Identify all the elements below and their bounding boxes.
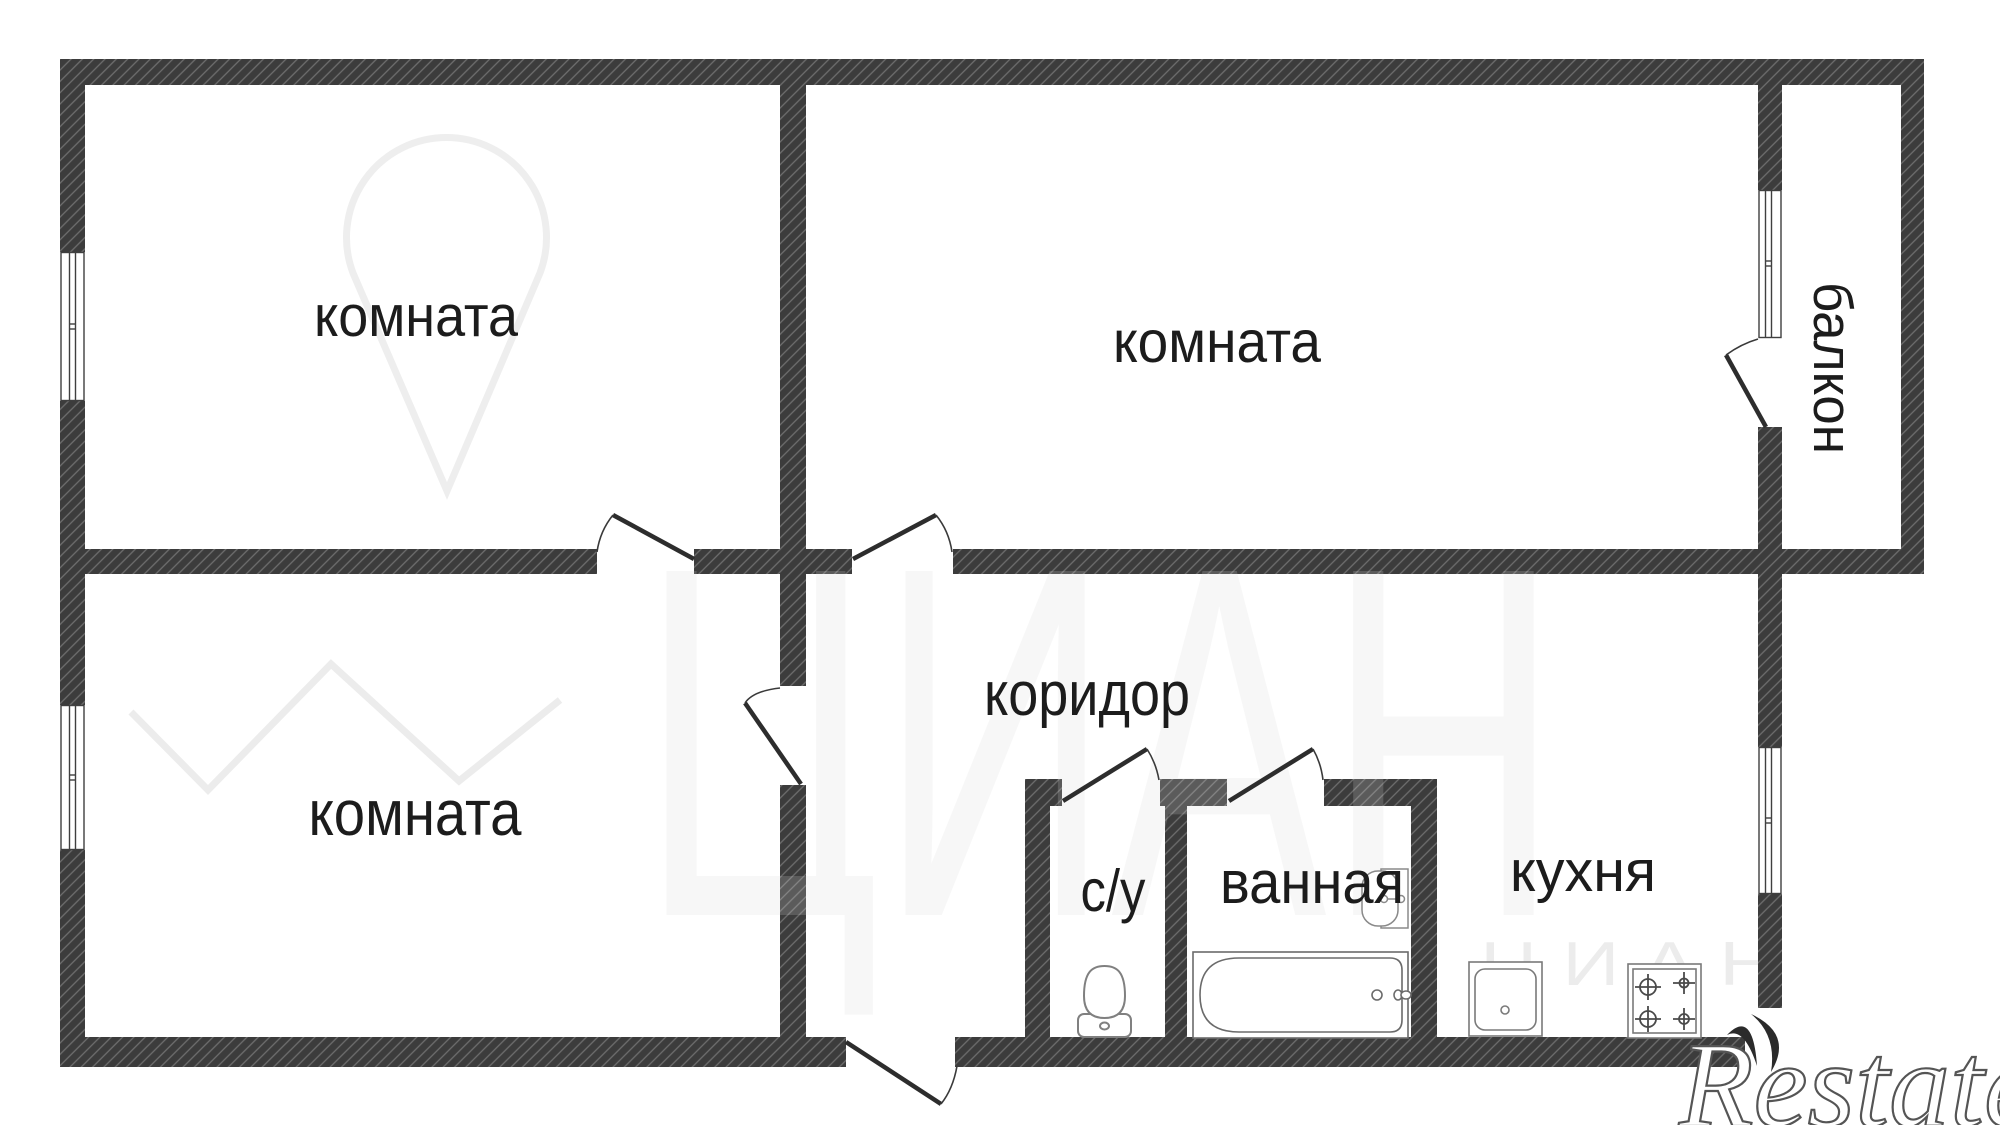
svg-text:коридор: коридор bbox=[984, 660, 1190, 729]
svg-text:Restate: Restate bbox=[1678, 1018, 2000, 1125]
svg-text:комната: комната bbox=[309, 777, 522, 849]
svg-text:с/у: с/у bbox=[1081, 858, 1146, 924]
svg-text:комната: комната bbox=[314, 284, 519, 349]
svg-text:кухня: кухня bbox=[1510, 839, 1656, 904]
svg-text:ванная: ванная bbox=[1220, 849, 1404, 916]
svg-text:комната: комната bbox=[1113, 309, 1321, 375]
svg-text:балкон: балкон bbox=[1802, 282, 1864, 454]
svg-text:ЦИАН: ЦИАН bbox=[640, 462, 1560, 1021]
